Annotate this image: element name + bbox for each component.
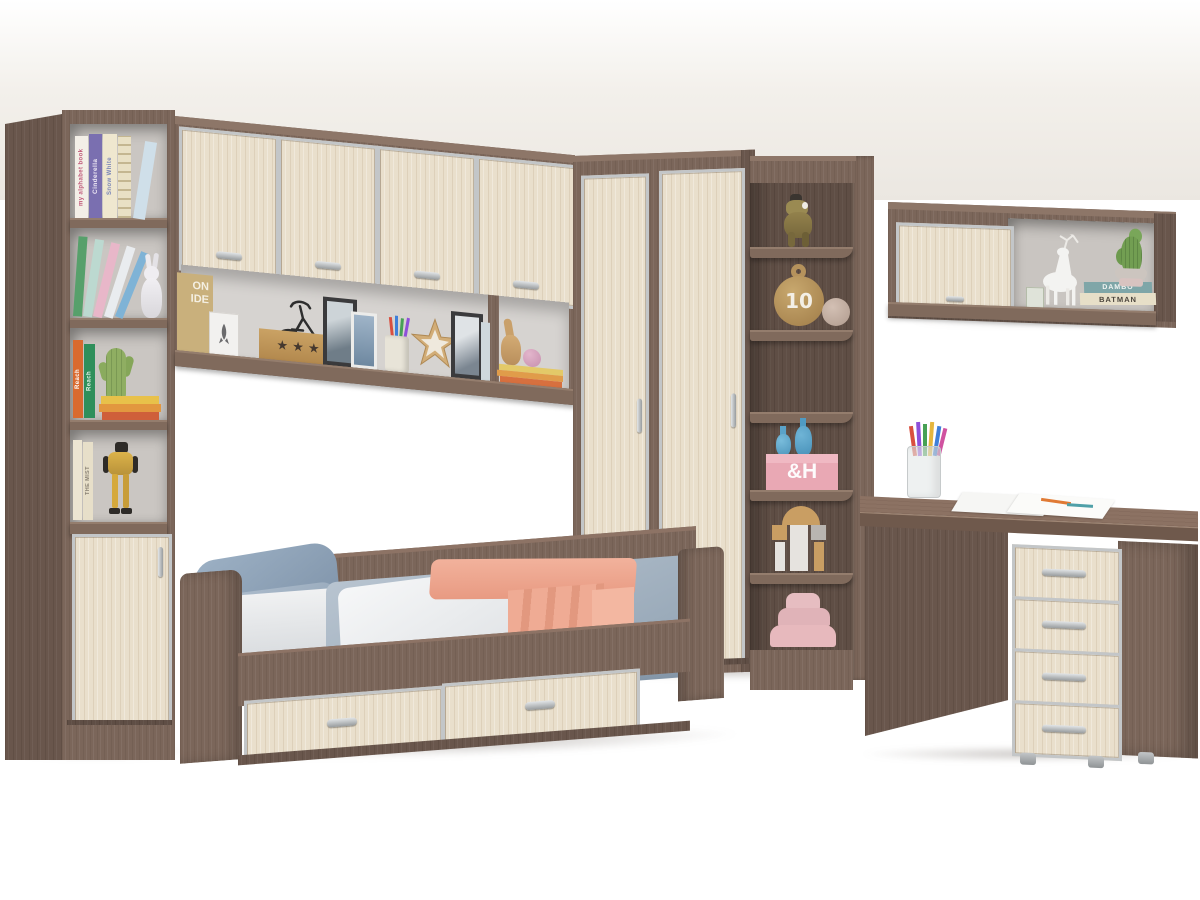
robot-toy-body <box>108 452 133 475</box>
dinosaur-toy-leg <box>802 232 809 247</box>
drawer-handle <box>1042 724 1086 733</box>
wooden-bunny-body <box>501 334 521 366</box>
book-snow-white: Snow White <box>103 134 117 218</box>
photo <box>455 315 479 375</box>
corner-shelf-top <box>750 156 856 183</box>
pencil-cup-glass <box>907 446 941 498</box>
bridge-door-3 <box>377 146 477 300</box>
desk <box>845 438 1200 770</box>
bridge-unit: ON IDE ★ ★ ★ ★ <box>175 116 575 405</box>
door-handle <box>216 251 242 261</box>
bookcase-door <box>72 534 172 724</box>
toy-block <box>811 525 826 540</box>
door-handle <box>946 296 964 302</box>
stacked-book <box>101 396 159 404</box>
desk-pedestal <box>1010 534 1200 783</box>
scene-children-bedroom: my alphabet book Cinderella Snow White R… <box>0 0 1200 900</box>
door-handle <box>158 547 163 577</box>
bridge-door-1 <box>179 126 279 280</box>
robot-toy-foot <box>109 508 120 514</box>
drawer-handle <box>1042 620 1086 629</box>
plant-pot-base <box>1119 278 1143 287</box>
bridge-door-4 <box>476 156 577 310</box>
poster-line2: IDE <box>177 291 209 307</box>
rocket-card <box>209 311 239 358</box>
desk-foot <box>1088 756 1104 769</box>
bridge-door-2 <box>278 136 378 290</box>
desk-left-panel <box>865 512 1008 736</box>
blue-vase <box>776 434 791 456</box>
bookcase-side-panel <box>5 114 62 760</box>
ball-10: 10 <box>774 276 824 326</box>
desk-foot <box>1138 752 1154 765</box>
desk-foot <box>1020 752 1036 765</box>
bunny-figurine-body <box>141 278 162 318</box>
wall-shelf-door <box>896 222 1014 312</box>
wall-shelf-right-panel <box>1154 213 1176 322</box>
dinosaur-toy-leg <box>788 232 795 247</box>
corner-shelf-board <box>750 490 853 501</box>
bookcase: my alphabet book Cinderella Snow White R… <box>5 110 175 760</box>
drawer-handle <box>525 700 555 710</box>
book-reach-green: Reach <box>84 344 95 418</box>
toy-block <box>790 525 808 571</box>
bookcase-plinth-line <box>67 720 172 725</box>
wall-shelf-top-edge <box>888 202 1176 219</box>
corner-shelf-board <box>750 247 853 258</box>
robot-toy-foot <box>121 508 132 514</box>
robot-toy-leg <box>112 474 118 508</box>
book-cinderella: Cinderella <box>89 134 102 218</box>
drawer-handle <box>1042 672 1086 681</box>
photo-frame-dark <box>451 311 483 380</box>
door-handle <box>731 393 736 427</box>
drawer-handle <box>327 717 357 727</box>
poster-card: ON IDE <box>177 272 213 354</box>
round-box-mid <box>778 608 830 626</box>
book-cream <box>73 440 82 520</box>
photo <box>327 301 353 364</box>
book-ornate <box>118 136 131 218</box>
toy-block-pillar <box>814 542 824 571</box>
photo <box>354 315 374 367</box>
toy-block <box>772 525 787 540</box>
bed <box>178 496 726 772</box>
pedestal-side-panel <box>1118 541 1198 759</box>
robot-toy-leg <box>123 474 129 508</box>
book-alphabet: my alphabet book <box>75 136 88 218</box>
letter-box: &H <box>766 454 838 490</box>
corner-shelf-board <box>750 330 853 341</box>
book-the-mist: THE MIST <box>83 442 93 520</box>
dinosaur-toy-eye <box>802 202 808 209</box>
door-handle <box>513 280 539 290</box>
stacked-book <box>99 404 161 412</box>
bookcase-shelf-board <box>70 522 167 534</box>
pencil-cup <box>385 335 409 373</box>
corner-shelf-base <box>750 650 853 690</box>
round-box-large <box>770 625 836 647</box>
corner-shelf-board <box>750 573 853 584</box>
photo-frame-white <box>351 311 377 370</box>
standing-book <box>481 322 490 381</box>
book-reach-orange: Reach <box>73 340 83 418</box>
drawer-handle <box>1042 568 1086 577</box>
door-handle <box>315 261 341 271</box>
book-batman: BATMAN <box>1080 293 1156 305</box>
wall-shelf: DAMBO BATMAN <box>888 202 1176 328</box>
blue-vase-tall <box>795 426 812 456</box>
stacked-book <box>102 412 159 420</box>
round-box-small <box>786 593 820 609</box>
toy-block-pillar <box>775 542 785 571</box>
rocket-icon <box>218 322 230 347</box>
door-handle <box>637 399 642 433</box>
bed-headboard-arm <box>180 569 242 764</box>
door-handle <box>414 270 440 280</box>
beige-ball <box>822 298 850 326</box>
